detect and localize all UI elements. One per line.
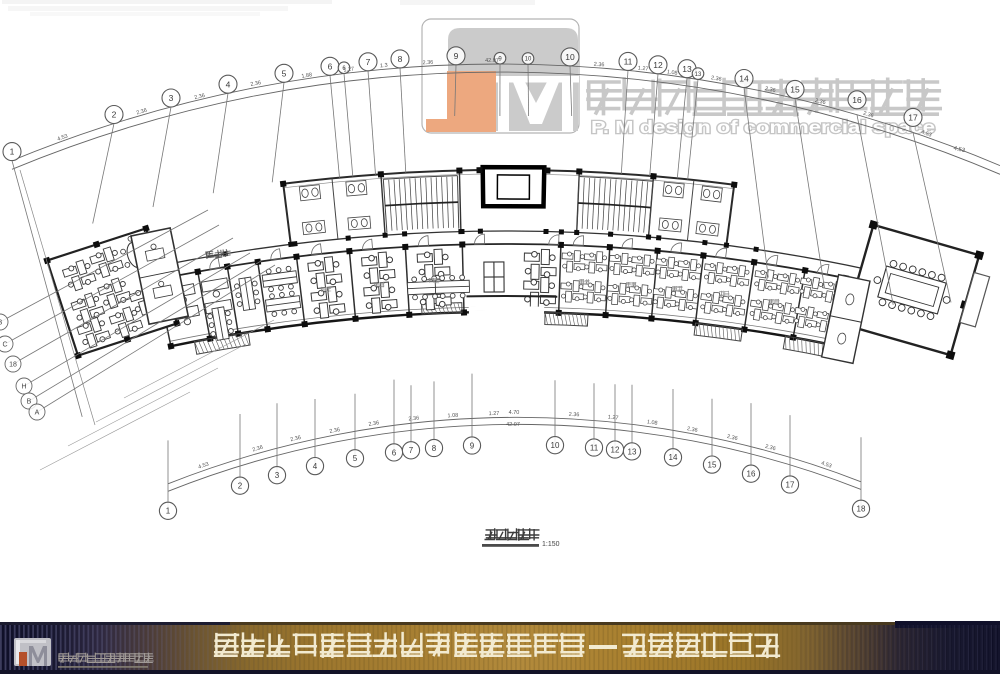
svg-text:42.07: 42.07 [485,58,499,64]
svg-text:5: 5 [282,68,287,78]
svg-text:15: 15 [708,461,717,470]
svg-text:1:150: 1:150 [542,541,560,548]
svg-text:11: 11 [590,443,599,452]
svg-text:10: 10 [525,57,532,63]
svg-text:1.08: 1.08 [447,413,458,420]
svg-text:H: H [21,384,26,391]
svg-text:9: 9 [454,51,459,61]
svg-text:1.3: 1.3 [380,63,388,70]
svg-text:6: 6 [392,448,397,457]
svg-text:8: 8 [398,54,403,64]
svg-text:7: 7 [409,446,414,455]
svg-text:16: 16 [747,470,756,479]
svg-text:10: 10 [551,441,560,450]
svg-text:18: 18 [9,362,17,369]
svg-text:8: 8 [432,444,437,453]
svg-text:15: 15 [790,85,800,95]
svg-text:14: 14 [669,453,678,462]
svg-text:C: C [2,342,7,349]
svg-text:P. M design of commercial spac: P. M design of commercial space [591,117,935,137]
svg-text:4: 4 [226,79,231,89]
svg-text:1.27: 1.27 [607,414,618,421]
svg-text:2: 2 [112,110,117,120]
svg-text:17: 17 [786,480,795,489]
svg-text:2.36: 2.36 [594,62,605,69]
svg-text:9: 9 [470,441,475,450]
svg-text:1: 1 [10,147,15,157]
svg-text:3: 3 [169,93,174,103]
svg-text:11: 11 [624,57,633,67]
svg-text:10: 10 [565,52,575,62]
svg-text:16: 16 [852,95,862,105]
svg-text:4.70: 4.70 [509,410,520,416]
svg-text:13: 13 [628,447,637,456]
svg-text:1.27: 1.27 [637,65,648,72]
svg-text:13: 13 [682,64,692,74]
svg-text:2: 2 [238,482,243,491]
svg-text:1: 1 [166,507,171,516]
svg-text:1.27: 1.27 [489,411,500,417]
svg-text:2.36: 2.36 [408,415,419,422]
svg-text:7: 7 [366,57,371,67]
svg-text:3: 3 [275,471,280,480]
svg-text:5: 5 [353,454,358,463]
svg-text:12: 12 [653,60,663,70]
svg-text:6: 6 [328,61,333,71]
svg-text:42.07: 42.07 [506,422,520,428]
svg-text:B: B [0,320,3,327]
svg-text:13: 13 [695,72,702,78]
svg-text:17: 17 [908,113,918,123]
svg-text:4: 4 [313,462,318,471]
svg-text:2.36: 2.36 [569,412,580,419]
svg-text:2.36: 2.36 [422,60,433,67]
svg-text:18: 18 [857,505,866,514]
svg-text:A: A [35,410,40,417]
svg-text:14: 14 [739,74,749,84]
svg-text:12: 12 [611,445,620,454]
svg-text:B: B [27,399,32,406]
